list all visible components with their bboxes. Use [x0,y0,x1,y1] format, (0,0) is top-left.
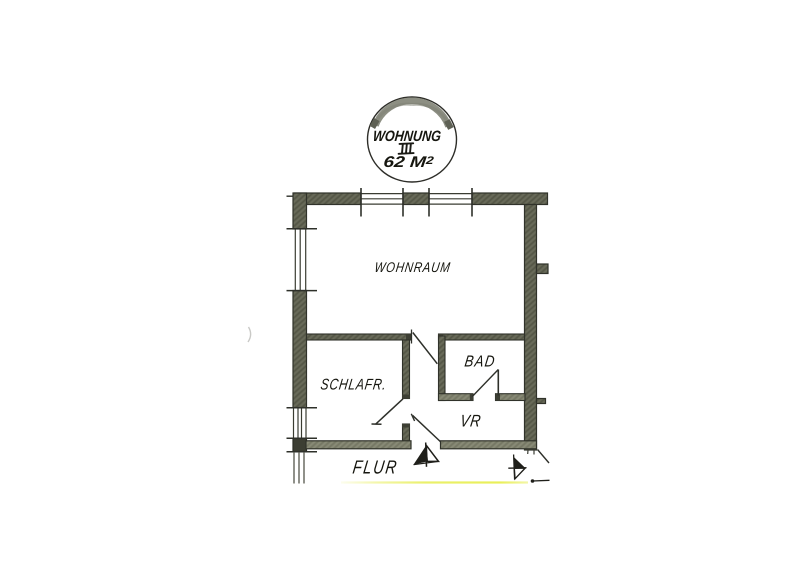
svg-text:BAD: BAD [463,353,497,371]
svg-text:FLUR: FLUR [351,458,399,479]
svg-text:WOHNUNG: WOHNUNG [372,128,442,145]
svg-text:VR: VR [459,412,483,431]
svg-text:WOHNRAUM: WOHNRAUM [374,259,452,275]
svg-text:SCHLAFR.: SCHLAFR. [319,377,387,394]
